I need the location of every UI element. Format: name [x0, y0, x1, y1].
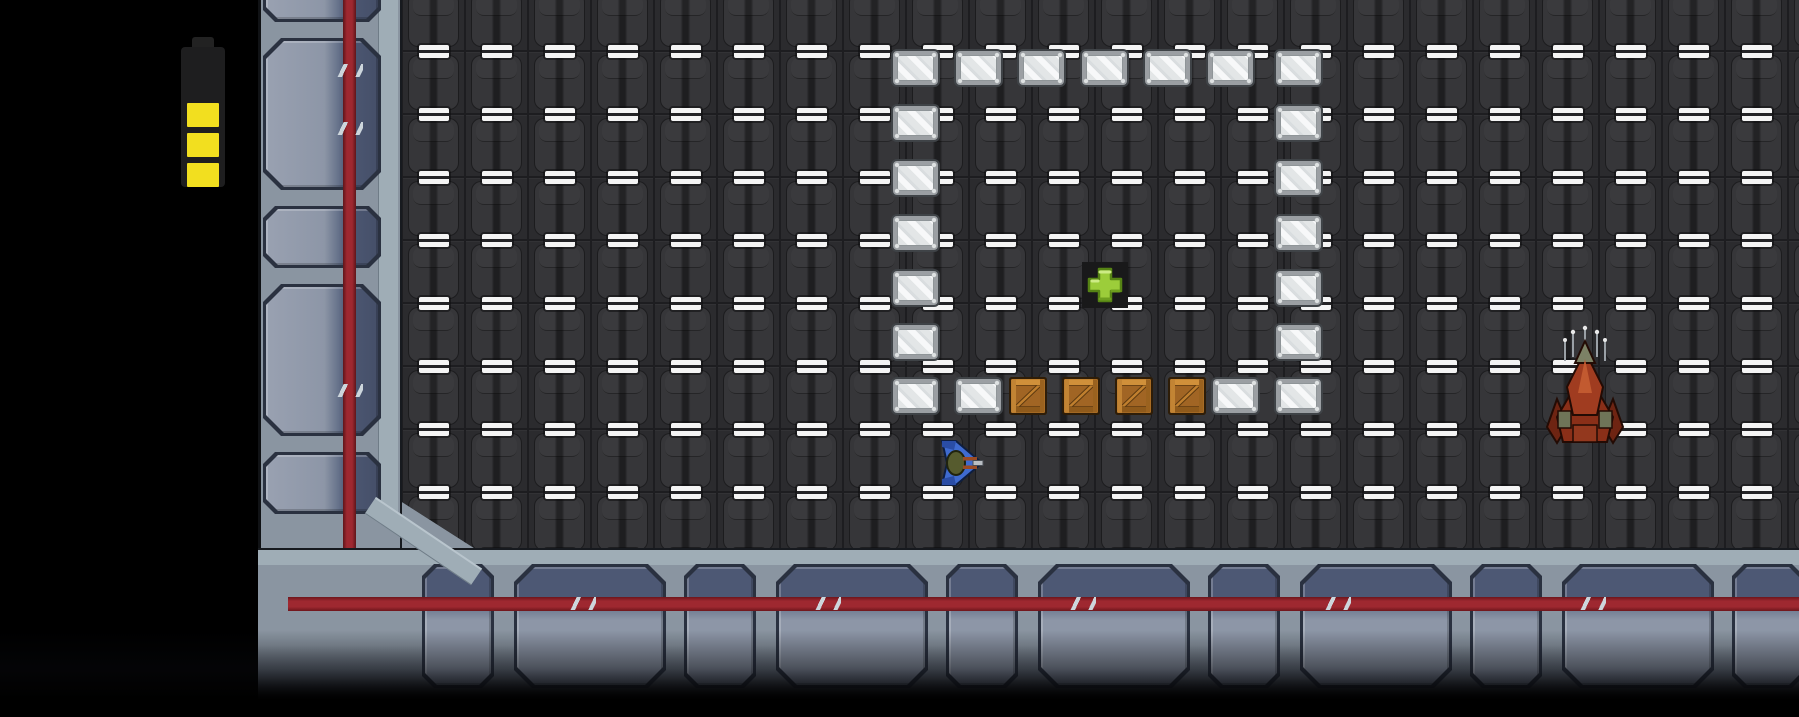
glass-block[interactable]	[891, 214, 940, 252]
floor-mark	[1427, 423, 1457, 436]
glass-pane	[897, 220, 934, 246]
floor-tile	[1473, 492, 1536, 548]
floor-mark	[1553, 171, 1583, 184]
crate-icon	[1009, 377, 1047, 415]
floor-tile	[780, 492, 843, 548]
floor-tile	[1473, 51, 1536, 114]
floor-tile	[1095, 114, 1158, 177]
floor-tile	[528, 114, 591, 177]
floor-tile	[591, 240, 654, 303]
floor-mark	[1553, 297, 1583, 310]
floor-mark	[1679, 171, 1709, 184]
floor-tile	[717, 492, 780, 548]
floor-tile	[591, 429, 654, 492]
floor-mark	[797, 171, 827, 184]
floor-tile	[591, 177, 654, 240]
floor-mark	[1679, 45, 1709, 58]
floor-tile	[1725, 429, 1788, 492]
floor-tile	[465, 51, 528, 114]
floor-tile	[465, 492, 528, 548]
floor-mark	[1175, 297, 1205, 310]
crate[interactable]	[1062, 377, 1100, 415]
floor-tile	[1536, 240, 1599, 303]
floor-mark	[1112, 108, 1142, 121]
floor-tile	[654, 0, 717, 51]
floor-tile	[1599, 51, 1662, 114]
floor-mark	[1553, 234, 1583, 247]
glass-pane	[897, 383, 934, 409]
floor-mark	[1742, 297, 1772, 310]
wall-bottom	[258, 548, 1799, 717]
battery-bar	[187, 133, 219, 157]
floor-mark	[1742, 45, 1772, 58]
enemy-ship-icon	[1545, 325, 1625, 447]
floor-mark	[1490, 360, 1520, 373]
floor-tile	[843, 492, 906, 548]
floor-mark	[1616, 297, 1646, 310]
floor-mark	[1049, 108, 1079, 121]
wall-panel	[263, 206, 381, 268]
glass-block[interactable]	[1143, 49, 1192, 87]
glass-block[interactable]	[1274, 49, 1323, 87]
crate[interactable]	[1115, 377, 1153, 415]
floor-tile	[1788, 0, 1799, 51]
floor-mark	[1427, 360, 1457, 373]
floor-mark	[482, 360, 512, 373]
wall-panel	[1732, 564, 1799, 688]
glass-pane	[1280, 275, 1317, 301]
glass-block[interactable]	[891, 377, 940, 415]
stripe-hazard-mark	[337, 122, 363, 135]
floor-tile	[654, 51, 717, 114]
glass-block[interactable]	[891, 323, 940, 361]
floor-tile	[780, 366, 843, 429]
floor-tile	[717, 240, 780, 303]
floor-tile	[465, 429, 528, 492]
enemy-ship[interactable]	[1545, 325, 1625, 447]
floor-mark	[1616, 234, 1646, 247]
floor-mark	[986, 486, 1016, 499]
floor-tile	[780, 114, 843, 177]
medkit-pickup[interactable]	[1082, 262, 1128, 308]
floor-mark	[1490, 171, 1520, 184]
floor-mark	[860, 486, 890, 499]
floor-mark	[608, 423, 638, 436]
glass-block[interactable]	[1274, 214, 1323, 252]
floor-mark	[797, 486, 827, 499]
floor-tile	[402, 114, 465, 177]
floor-tile	[465, 114, 528, 177]
floor-tile	[969, 492, 1032, 548]
wall-panel	[1562, 564, 1714, 688]
floor-mark	[482, 171, 512, 184]
glass-block[interactable]	[954, 49, 1003, 87]
floor-tile	[1662, 492, 1725, 548]
floor-mark	[860, 108, 890, 121]
floor-mark	[1679, 360, 1709, 373]
floor-tile	[1347, 366, 1410, 429]
floor-mark	[1364, 360, 1394, 373]
glass-pane	[1280, 329, 1317, 355]
floor-mark	[986, 108, 1016, 121]
floor-mark	[482, 423, 512, 436]
floor-tile	[1473, 303, 1536, 366]
floor-mark	[608, 108, 638, 121]
floor-tile	[654, 429, 717, 492]
glass-block[interactable]	[954, 377, 1003, 415]
floor-tile	[1221, 492, 1284, 548]
floor-mark	[1553, 45, 1583, 58]
floor-tile	[465, 366, 528, 429]
floor-tile	[1410, 366, 1473, 429]
floor-mark	[1238, 108, 1268, 121]
floor-tile	[1788, 492, 1799, 548]
floor-mark	[545, 45, 575, 58]
crate-icon	[1062, 377, 1100, 415]
floor-mark	[1049, 171, 1079, 184]
floor-tile	[969, 114, 1032, 177]
floor-tile	[402, 366, 465, 429]
floor-tile	[402, 51, 465, 114]
stripe-hazard-mark	[1325, 597, 1351, 610]
floor-mark	[1490, 234, 1520, 247]
floor-mark	[1553, 486, 1583, 499]
floor-tile	[906, 492, 969, 548]
glass-pane	[897, 165, 934, 191]
floor-tile	[969, 303, 1032, 366]
floor-tile	[1032, 114, 1095, 177]
wall-panel	[263, 452, 381, 514]
crate-icon	[1115, 377, 1153, 415]
wall-red-stripe	[288, 597, 1799, 611]
floor-mark	[1616, 486, 1646, 499]
glass-pane	[1023, 55, 1060, 81]
glass-block[interactable]	[891, 269, 940, 307]
floor-tile	[780, 0, 843, 51]
floor-mark	[1175, 108, 1205, 121]
floor-tile	[1662, 114, 1725, 177]
floor-mark	[734, 297, 764, 310]
floor-mark	[734, 423, 764, 436]
floor-mark	[545, 360, 575, 373]
wall-panel	[263, 38, 381, 190]
floor-tile	[969, 240, 1032, 303]
floor-mark	[1553, 108, 1583, 121]
floor-mark	[860, 234, 890, 247]
floor-mark	[797, 45, 827, 58]
floor-mark	[1679, 108, 1709, 121]
floor-mark	[608, 234, 638, 247]
game-viewport[interactable]	[0, 0, 1799, 717]
glass-block[interactable]	[1017, 49, 1066, 87]
floor-tile	[528, 177, 591, 240]
crate[interactable]	[1168, 377, 1206, 415]
floor-tile	[780, 303, 843, 366]
floor-mark	[1175, 486, 1205, 499]
floor-mark	[734, 45, 764, 58]
floor-tile	[591, 303, 654, 366]
floor-mark	[860, 297, 890, 310]
floor-tile	[1347, 51, 1410, 114]
floor-tile	[465, 240, 528, 303]
floor-mark	[1742, 423, 1772, 436]
battery-bar	[187, 103, 219, 127]
floor-tile	[1725, 177, 1788, 240]
floor-tile	[1284, 429, 1347, 492]
floor-mark	[671, 360, 701, 373]
floor-tile	[654, 177, 717, 240]
floor-tile	[1158, 303, 1221, 366]
floor-tile	[528, 303, 591, 366]
floor-mark	[1175, 423, 1205, 436]
floor-tile	[1599, 177, 1662, 240]
crate-icon	[1168, 377, 1206, 415]
floor-mark	[671, 423, 701, 436]
floor-tile	[1788, 51, 1799, 114]
floor-tile	[591, 366, 654, 429]
floor-tile	[843, 429, 906, 492]
floor-tile	[1599, 240, 1662, 303]
floor-mark	[986, 234, 1016, 247]
floor-mark	[1742, 108, 1772, 121]
floor-tile	[1158, 0, 1221, 51]
floor-tile	[717, 303, 780, 366]
floor-mark	[1616, 171, 1646, 184]
floor-mark	[608, 45, 638, 58]
floor-mark	[1175, 171, 1205, 184]
floor-mark	[671, 486, 701, 499]
floor-tile	[1536, 492, 1599, 548]
floor-mark	[1427, 297, 1457, 310]
crate[interactable]	[1009, 377, 1047, 415]
floor-tile	[843, 0, 906, 51]
wall-panel	[263, 284, 381, 436]
floor-tile	[402, 177, 465, 240]
floor-tile	[1410, 303, 1473, 366]
floor-mark	[1049, 234, 1079, 247]
floor-mark	[671, 45, 701, 58]
floor-tile	[906, 0, 969, 51]
floor-mark	[734, 360, 764, 373]
floor-mark	[1301, 423, 1331, 436]
floor-mark	[1679, 423, 1709, 436]
floor-tile	[1788, 240, 1799, 303]
floor-mark	[1616, 45, 1646, 58]
floor-tile	[402, 429, 465, 492]
floor-tile	[717, 51, 780, 114]
floor-mark	[1112, 486, 1142, 499]
floor-tile	[1221, 0, 1284, 51]
floor-tile	[1284, 0, 1347, 51]
floor-tile	[1788, 429, 1799, 492]
wall-panel	[422, 564, 494, 688]
medkit-plus-icon	[1086, 266, 1124, 304]
floor-tile	[528, 492, 591, 548]
floor-tile	[1788, 177, 1799, 240]
floor-tile	[1410, 0, 1473, 51]
floor-mark	[482, 45, 512, 58]
floor-mark	[1238, 234, 1268, 247]
floor-tile	[1473, 114, 1536, 177]
floor-tile	[1158, 114, 1221, 177]
floor-tile	[1788, 303, 1799, 366]
floor-mark	[608, 171, 638, 184]
floor-tile	[1095, 177, 1158, 240]
glass-pane	[960, 55, 997, 81]
floor-mark	[923, 360, 953, 373]
floor-mark	[860, 171, 890, 184]
floor-tile	[528, 429, 591, 492]
floor-tile	[1284, 492, 1347, 548]
floor-tile	[1158, 492, 1221, 548]
floor-mark	[671, 234, 701, 247]
floor-tile	[465, 0, 528, 51]
floor-tile	[465, 303, 528, 366]
player-ship[interactable]	[938, 437, 984, 489]
glass-block[interactable]	[1211, 377, 1260, 415]
floor-mark	[1679, 234, 1709, 247]
wall-panel	[946, 564, 1018, 688]
floor-tile	[1473, 366, 1536, 429]
floor-tile	[1473, 240, 1536, 303]
floor-tile	[1410, 240, 1473, 303]
glass-block[interactable]	[1274, 269, 1323, 307]
battery-indicator	[181, 37, 225, 187]
player-ship-icon	[938, 437, 984, 489]
floor-mark	[419, 45, 449, 58]
floor-mark	[482, 297, 512, 310]
glass-block[interactable]	[1274, 377, 1323, 415]
floor-mark	[1427, 108, 1457, 121]
floor-tile	[1536, 114, 1599, 177]
floor-mark	[671, 108, 701, 121]
floor-mark	[1049, 297, 1079, 310]
floor-mark	[1490, 297, 1520, 310]
floor-mark	[1490, 45, 1520, 58]
floor-tile	[1095, 0, 1158, 51]
floor-mark	[797, 297, 827, 310]
wall-panel	[1038, 564, 1190, 688]
floor-mark	[1238, 297, 1268, 310]
floor-tile	[1725, 366, 1788, 429]
floor-tile	[1158, 429, 1221, 492]
floor-mark	[1112, 171, 1142, 184]
floor-mark	[1112, 423, 1142, 436]
floor-mark	[860, 45, 890, 58]
floor-tile	[1788, 114, 1799, 177]
floor-tile	[1536, 0, 1599, 51]
floor-mark	[1364, 423, 1394, 436]
floor-tile	[717, 429, 780, 492]
glass-pane	[897, 110, 934, 136]
floor-mark	[419, 423, 449, 436]
wall-panel	[263, 0, 381, 22]
stripe-hazard-mark	[815, 597, 841, 610]
floor-tile	[465, 177, 528, 240]
floor-mark	[1364, 45, 1394, 58]
glass-pane	[1280, 55, 1317, 81]
floor-tile	[528, 51, 591, 114]
floor-mark	[671, 297, 701, 310]
glass-block[interactable]	[891, 159, 940, 197]
floor-tile	[654, 492, 717, 548]
floor-mark	[419, 171, 449, 184]
wall-panel	[514, 564, 666, 688]
glass-block[interactable]	[1080, 49, 1129, 87]
floor-mark	[1238, 171, 1268, 184]
floor-tile	[1221, 429, 1284, 492]
floor-tile	[654, 303, 717, 366]
floor-mark	[1427, 45, 1457, 58]
stripe-hazard-mark	[1580, 597, 1606, 610]
floor-tile	[780, 51, 843, 114]
floor-mark	[1238, 360, 1268, 373]
floor-tile	[1599, 0, 1662, 51]
floor-mark	[1490, 423, 1520, 436]
floor-tile	[717, 366, 780, 429]
floor-tile	[591, 51, 654, 114]
floor-mark	[1238, 486, 1268, 499]
glass-block[interactable]	[1206, 49, 1255, 87]
floor-tile	[1410, 429, 1473, 492]
floor-tile	[1158, 240, 1221, 303]
floor-mark	[1742, 234, 1772, 247]
stripe-hazard-mark	[570, 597, 596, 610]
floor-tile	[1032, 303, 1095, 366]
floor-tile	[1473, 177, 1536, 240]
floor-mark	[860, 360, 890, 373]
floor-mark	[608, 486, 638, 499]
floor-mark	[1742, 360, 1772, 373]
glass-pane	[897, 55, 934, 81]
floor-tile	[1095, 303, 1158, 366]
floor-mark	[1238, 423, 1268, 436]
floor-tile	[1725, 303, 1788, 366]
floor-tile	[1788, 366, 1799, 429]
glass-pane	[1280, 220, 1317, 246]
floor-tile	[1347, 177, 1410, 240]
glass-block[interactable]	[891, 104, 940, 142]
glass-block[interactable]	[1274, 104, 1323, 142]
floor-tile	[1725, 240, 1788, 303]
glass-pane	[1280, 383, 1317, 409]
floor-mark	[1679, 297, 1709, 310]
glass-block[interactable]	[891, 49, 940, 87]
floor-tile	[1599, 492, 1662, 548]
floor-tile	[1347, 114, 1410, 177]
glass-block[interactable]	[1274, 323, 1323, 361]
floor-tile	[1410, 51, 1473, 114]
glass-pane	[1280, 165, 1317, 191]
wall-left-coping	[378, 0, 398, 515]
floor-tile	[591, 492, 654, 548]
wall-panel	[1208, 564, 1280, 688]
glass-pane	[1280, 110, 1317, 136]
floor-tile	[1725, 114, 1788, 177]
floor-mark	[1364, 297, 1394, 310]
floor-tile	[1662, 366, 1725, 429]
floor-mark	[419, 486, 449, 499]
floor-mark	[1301, 486, 1331, 499]
floor-mark	[1112, 360, 1142, 373]
wall-red-stripe	[343, 0, 356, 548]
floor-tile	[1032, 177, 1095, 240]
glass-pane	[960, 383, 997, 409]
floor-mark	[923, 423, 953, 436]
floor-mark	[419, 297, 449, 310]
floor-mark	[482, 108, 512, 121]
glass-block[interactable]	[1274, 159, 1323, 197]
